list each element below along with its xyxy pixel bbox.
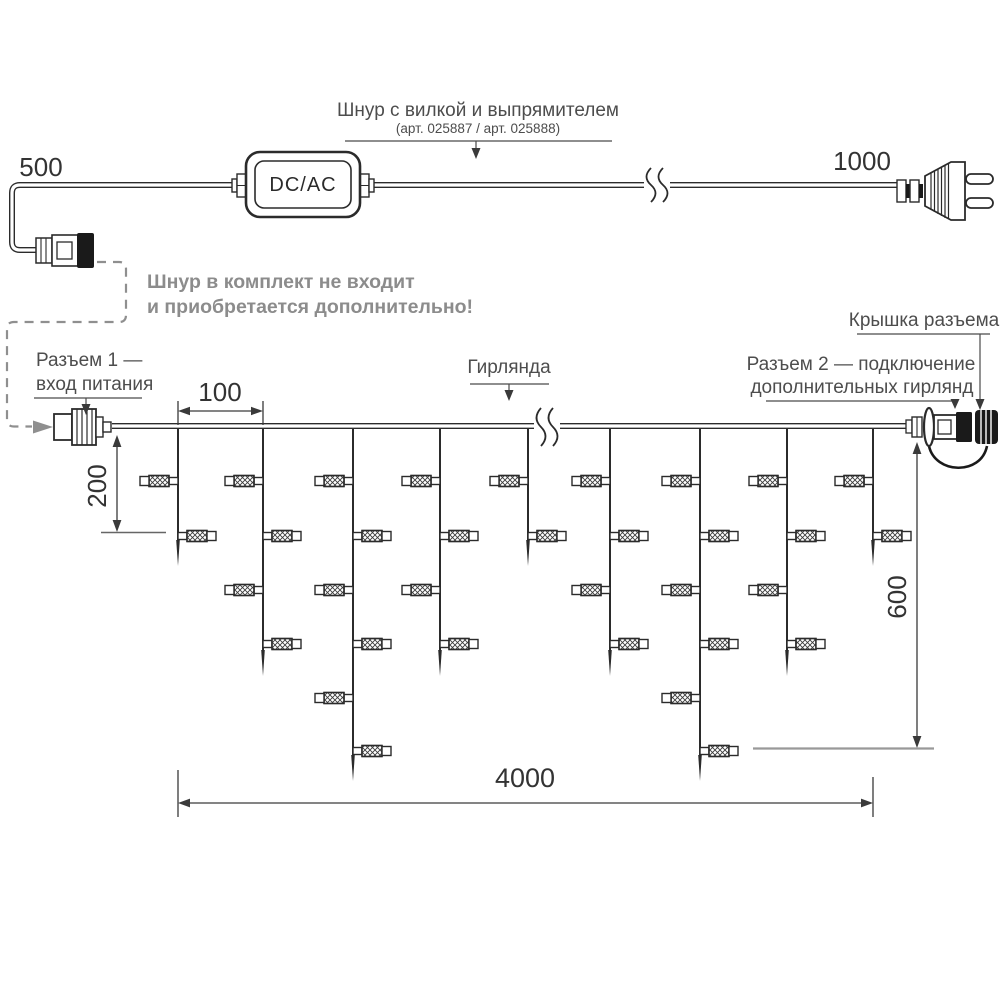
dashed-connection-path	[7, 262, 126, 427]
led-bulb	[440, 531, 478, 542]
dcac-adapter: DC/AC	[232, 152, 374, 217]
led-bulb	[700, 746, 738, 757]
bulb-glass	[709, 746, 729, 757]
power-cord-assembly: DC/AC 500 1000	[12, 100, 993, 268]
bulb-glass	[149, 476, 169, 487]
garland-drop	[225, 428, 301, 676]
wire-break-icon	[534, 408, 560, 446]
cap-label: Крышка разъема	[849, 310, 1000, 331]
connector1-label-line1: Разъем 1 —	[36, 350, 142, 371]
led-bulb	[315, 476, 353, 487]
bulb-glass	[362, 531, 382, 542]
cord-label-line1: Шнур с вилкой и выпрямителем	[337, 100, 619, 121]
bulb-glass	[324, 476, 344, 487]
bulb-glass	[324, 693, 344, 704]
connector-2	[906, 408, 998, 468]
connector2-label-line2: дополнительных гирлянд	[750, 377, 973, 398]
dim-1000: 1000	[833, 146, 891, 176]
dimension-600: 600	[753, 442, 934, 749]
garland-drop	[662, 428, 738, 781]
garland-drop	[749, 428, 825, 676]
dim-100-text: 100	[198, 377, 241, 407]
dim-200-text: 200	[82, 464, 112, 507]
bulb-glass	[537, 531, 557, 542]
drop-needle-tip	[438, 650, 442, 676]
led-bulb	[749, 476, 787, 487]
bulb-glass	[619, 531, 639, 542]
drop-needle-tip	[261, 650, 265, 676]
led-bulb	[873, 531, 911, 542]
bulb-glass	[709, 531, 729, 542]
cord-connector-cap	[77, 233, 94, 268]
bulb-glass	[619, 639, 639, 650]
dimension-4000: 4000	[178, 763, 873, 817]
garland-drop	[315, 428, 391, 781]
led-bulb	[572, 476, 610, 487]
led-bulb	[353, 531, 391, 542]
led-bulb	[662, 693, 700, 704]
drop-needle-tip	[608, 650, 612, 676]
bulb-glass	[362, 746, 382, 757]
label-connector-1: Разъем 1 — вход питания	[34, 350, 153, 415]
bulb-glass	[272, 639, 292, 650]
adapter-text: DC/AC	[269, 174, 336, 196]
led-bulb	[263, 639, 301, 650]
dashed-path-arrow	[33, 421, 53, 434]
garland-drop	[402, 428, 478, 676]
note-line2: и приобретается дополнительно!	[147, 296, 473, 318]
drop-needle-tip	[176, 540, 180, 566]
bulb-glass	[499, 476, 519, 487]
led-bulb	[528, 531, 566, 542]
bulb-glass	[324, 585, 344, 596]
connector-1	[54, 409, 111, 445]
plug-prong-top	[966, 174, 993, 184]
garland-drops	[140, 428, 911, 781]
connector2-label-line1: Разъем 2 — подключение	[747, 354, 976, 375]
led-bulb	[353, 639, 391, 650]
bulb-glass	[844, 476, 864, 487]
cord-label: Шнур с вилкой и выпрямителем (арт. 02588…	[337, 100, 619, 159]
drop-needle-tip	[526, 540, 530, 566]
label-connector-2: Разъем 2 — подключение дополнительных ги…	[747, 354, 976, 409]
garland-drop	[572, 428, 648, 676]
led-bulb	[225, 585, 263, 596]
garland-drop	[835, 428, 911, 566]
bulb-glass	[882, 531, 902, 542]
dim-500: 500	[19, 152, 62, 182]
note-section: Шнур в комплект не входит и приобретаетс…	[7, 262, 473, 434]
garland-label: Гирлянда	[467, 357, 551, 378]
connector-2-body	[956, 412, 972, 442]
drop-needle-tip	[351, 755, 355, 781]
adapter-right-nipple	[369, 179, 374, 192]
bulb-glass	[796, 531, 816, 542]
cord-end-connector	[36, 233, 94, 268]
drop-needle-tip	[785, 650, 789, 676]
led-bulb	[610, 531, 648, 542]
led-bulb	[315, 693, 353, 704]
drop-needle-tip	[698, 755, 702, 781]
led-bulb	[610, 639, 648, 650]
plug-prong-bottom	[966, 198, 993, 208]
led-bulb	[315, 585, 353, 596]
led-bulb	[140, 476, 178, 487]
led-bulb	[353, 746, 391, 757]
led-bulb	[700, 531, 738, 542]
bulb-glass	[758, 476, 778, 487]
bulb-glass	[234, 476, 254, 487]
bulb-glass	[671, 476, 691, 487]
diagram-canvas: DC/AC 500 1000	[0, 0, 1000, 1000]
bulb-glass	[449, 639, 469, 650]
note-line1: Шнур в комплект не входит	[147, 271, 415, 293]
connector1-label-line2: вход питания	[36, 374, 153, 395]
connector-ring	[924, 408, 934, 446]
cord-label-arrow	[472, 148, 481, 159]
garland-diagram-svg: DC/AC 500 1000	[0, 0, 1000, 1000]
led-bulb	[835, 476, 873, 487]
led-bulb	[225, 476, 263, 487]
led-bulb	[490, 476, 528, 487]
bulb-glass	[671, 693, 691, 704]
led-bulb	[402, 585, 440, 596]
bulb-glass	[709, 639, 729, 650]
bulb-glass	[758, 585, 778, 596]
bulb-glass	[187, 531, 207, 542]
garland-drop	[140, 428, 216, 566]
bulb-glass	[796, 639, 816, 650]
led-bulb	[440, 639, 478, 650]
dim-4000-text: 4000	[495, 763, 555, 793]
led-bulb	[662, 476, 700, 487]
adapter-left-nipple	[232, 179, 237, 192]
cord-label-line2: (арт. 025887 / арт. 025888)	[396, 121, 560, 136]
bulb-glass	[362, 639, 382, 650]
dim-600-text: 600	[882, 575, 912, 618]
bulb-glass	[411, 585, 431, 596]
garland-drop	[490, 428, 566, 566]
led-bulb	[749, 585, 787, 596]
garland-wire	[112, 408, 908, 446]
connector-cap	[975, 410, 998, 444]
led-bulb	[572, 585, 610, 596]
cord-break-icon	[644, 168, 670, 202]
bulb-glass	[272, 531, 292, 542]
power-plug	[897, 162, 993, 220]
dimension-100: 100	[178, 377, 263, 425]
drop-needle-tip	[871, 540, 875, 566]
bulb-glass	[449, 531, 469, 542]
led-bulb	[662, 585, 700, 596]
led-bulb	[402, 476, 440, 487]
bulb-glass	[234, 585, 254, 596]
bulb-glass	[671, 585, 691, 596]
bulb-glass	[581, 476, 601, 487]
led-bulb	[787, 639, 825, 650]
led-bulb	[263, 531, 301, 542]
led-bulb	[787, 531, 825, 542]
led-bulb	[178, 531, 216, 542]
bulb-glass	[581, 585, 601, 596]
label-garland: Гирлянда	[467, 357, 551, 401]
cap-leash	[929, 446, 987, 468]
led-bulb	[700, 639, 738, 650]
bulb-glass	[411, 476, 431, 487]
